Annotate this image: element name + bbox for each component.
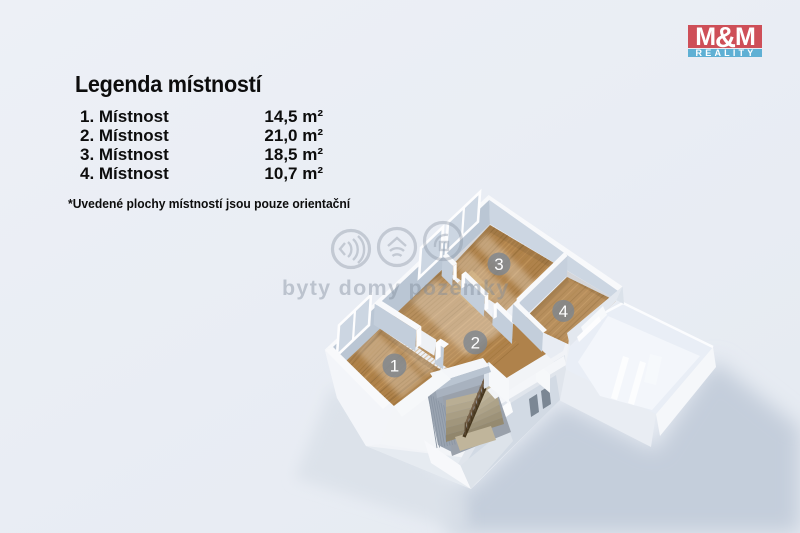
svg-text:1: 1 — [390, 357, 399, 376]
svg-text:2: 2 — [471, 333, 480, 352]
svg-text:3: 3 — [494, 255, 503, 274]
svg-text:4: 4 — [559, 302, 568, 321]
